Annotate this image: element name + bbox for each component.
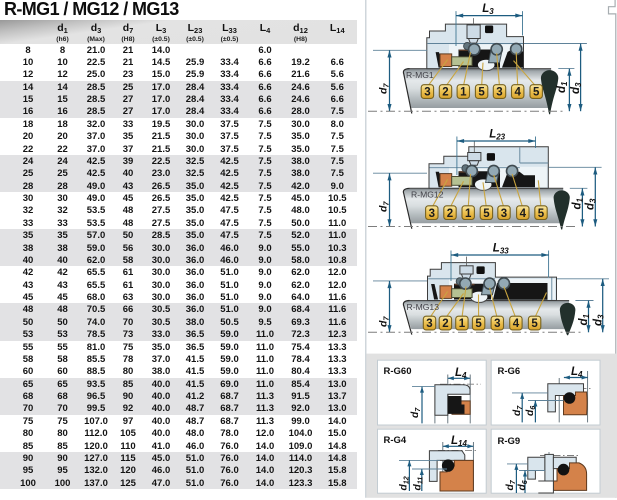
- svg-text:d3: d3: [593, 314, 606, 326]
- svg-text:R-MG13: R-MG13: [407, 302, 440, 312]
- svg-text:3: 3: [494, 318, 500, 330]
- svg-text:5: 5: [533, 87, 540, 99]
- svg-text:4: 4: [513, 318, 520, 330]
- svg-text:L33: L33: [493, 243, 509, 256]
- svg-text:1: 1: [460, 87, 467, 99]
- svg-text:2: 2: [442, 318, 448, 330]
- svg-text:3: 3: [426, 318, 432, 330]
- svg-text:2: 2: [442, 87, 448, 99]
- svg-text:d3: d3: [570, 82, 583, 94]
- svg-text:3: 3: [424, 87, 430, 99]
- svg-text:R-G6: R-G6: [498, 366, 521, 377]
- svg-text:5: 5: [478, 87, 485, 99]
- svg-text:d7: d7: [378, 201, 391, 212]
- svg-text:1: 1: [459, 318, 466, 330]
- svg-text:d1: d1: [556, 81, 569, 93]
- svg-text:R-G60: R-G60: [384, 366, 412, 377]
- svg-text:2: 2: [447, 208, 453, 220]
- svg-text:1: 1: [465, 208, 472, 220]
- svg-text:d7: d7: [378, 316, 391, 327]
- svg-text:5: 5: [475, 318, 482, 330]
- svg-text:d1: d1: [571, 197, 584, 209]
- svg-text:R-G4: R-G4: [384, 435, 407, 446]
- svg-text:4: 4: [514, 87, 521, 99]
- svg-text:R-G9: R-G9: [498, 436, 521, 447]
- svg-text:5: 5: [538, 208, 545, 220]
- svg-text:5: 5: [483, 208, 490, 220]
- svg-text:R-MG1: R-MG1: [406, 70, 434, 80]
- svg-text:5: 5: [531, 318, 538, 330]
- svg-text:3: 3: [501, 208, 507, 220]
- svg-text:d3: d3: [584, 198, 597, 210]
- svg-text:3: 3: [496, 87, 502, 99]
- svg-text:L3: L3: [482, 3, 494, 16]
- svg-text:4: 4: [520, 208, 527, 220]
- svg-text:d1: d1: [578, 313, 591, 325]
- svg-text:d7: d7: [378, 83, 391, 94]
- svg-text:L23: L23: [489, 129, 505, 142]
- svg-text:3: 3: [429, 208, 435, 220]
- svg-text:R-MG12: R-MG12: [411, 190, 444, 200]
